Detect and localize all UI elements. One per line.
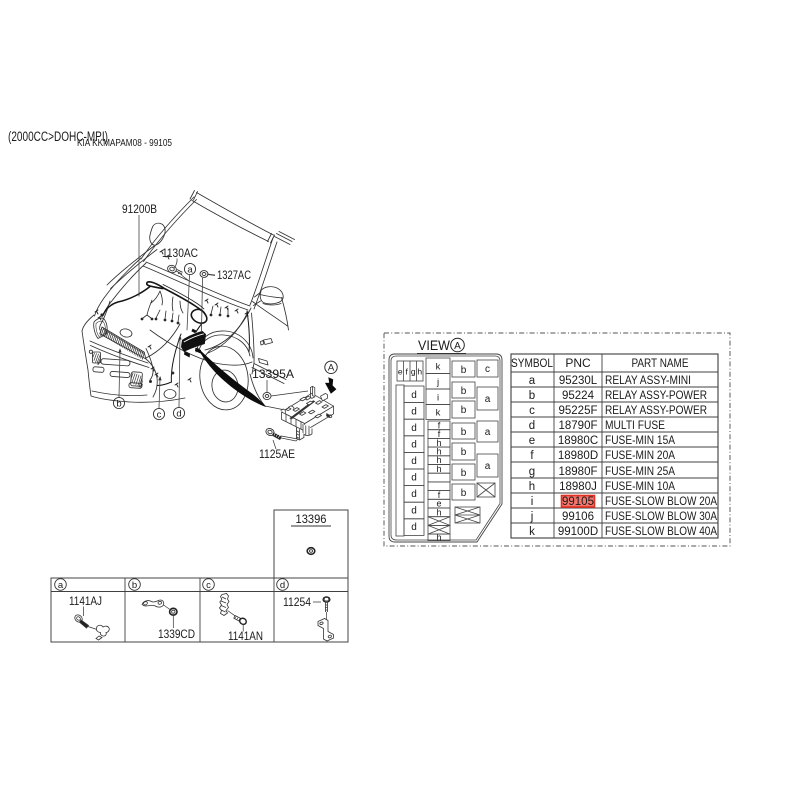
svg-text:1339CD: 1339CD	[158, 629, 195, 641]
svg-text:KIA KKMAPAM08 - 99105: KIA KKMAPAM08 - 99105	[77, 137, 172, 149]
svg-text:1130AC: 1130AC	[162, 248, 198, 260]
svg-text:a: a	[187, 265, 193, 276]
svg-text:d: d	[411, 423, 417, 434]
svg-text:d: d	[529, 420, 535, 432]
svg-text:j: j	[530, 511, 534, 523]
svg-text:1125AE: 1125AE	[259, 449, 295, 461]
svg-text:c: c	[206, 580, 211, 591]
svg-text:j: j	[436, 377, 439, 388]
svg-text:PART NAME: PART NAME	[632, 356, 689, 370]
svg-text:RELAY ASSY-MINI: RELAY ASSY-MINI	[605, 375, 691, 387]
svg-text:d: d	[280, 580, 285, 591]
svg-text:b: b	[461, 405, 467, 416]
svg-text:RELAY ASSY-POWER: RELAY ASSY-POWER	[605, 390, 707, 402]
svg-text:d: d	[411, 390, 417, 401]
svg-text:d: d	[411, 506, 417, 517]
svg-text:FUSE-MIN 15A: FUSE-MIN 15A	[605, 435, 675, 447]
svg-text:a: a	[485, 427, 491, 438]
svg-text:d: d	[176, 409, 181, 420]
svg-text:d: d	[411, 407, 417, 418]
svg-text:b: b	[461, 468, 467, 479]
svg-text:A: A	[328, 363, 335, 374]
svg-text:FUSE-SLOW BLOW 20A: FUSE-SLOW BLOW 20A	[605, 496, 717, 508]
svg-text:b: b	[461, 365, 467, 376]
svg-text:c: c	[485, 364, 490, 375]
svg-text:k: k	[436, 408, 441, 419]
svg-text:FUSE-MIN 25A: FUSE-MIN 25A	[605, 466, 675, 478]
svg-text:18980D: 18980D	[558, 450, 598, 462]
svg-text:i: i	[437, 393, 439, 404]
svg-text:FUSE-MIN 10A: FUSE-MIN 10A	[605, 481, 675, 493]
svg-text:VIEW: VIEW	[418, 338, 450, 353]
svg-text:13395A: 13395A	[252, 369, 294, 381]
svg-text:RELAY ASSY-POWER: RELAY ASSY-POWER	[605, 405, 707, 417]
svg-text:h: h	[436, 464, 441, 474]
svg-text:1141AJ: 1141AJ	[69, 596, 102, 608]
svg-text:1327AC: 1327AC	[217, 270, 251, 282]
svg-text:FUSE-SLOW BLOW 30A: FUSE-SLOW BLOW 30A	[605, 511, 717, 523]
svg-text:b: b	[116, 399, 121, 410]
svg-text:e: e	[398, 367, 403, 377]
svg-text:d: d	[411, 473, 417, 484]
svg-text:11254: 11254	[283, 597, 312, 609]
svg-text:i: i	[531, 496, 534, 508]
svg-text:b: b	[461, 386, 467, 397]
svg-text:b: b	[132, 580, 137, 591]
svg-text:d: d	[411, 522, 417, 533]
svg-text:b: b	[461, 427, 467, 438]
svg-text:18790F: 18790F	[558, 420, 597, 432]
svg-text:b: b	[461, 488, 467, 499]
svg-text:k: k	[529, 526, 535, 538]
svg-text:99100D: 99100D	[558, 526, 598, 538]
svg-text:MULTI FUSE: MULTI FUSE	[605, 420, 665, 432]
svg-text:d: d	[411, 456, 417, 467]
svg-text:c: c	[157, 410, 162, 421]
svg-text:18980F: 18980F	[558, 466, 597, 478]
svg-text:b: b	[529, 390, 535, 402]
svg-text:91200B: 91200B	[122, 204, 157, 216]
svg-text:e: e	[529, 435, 535, 447]
svg-text:h: h	[436, 532, 441, 542]
svg-text:a: a	[485, 461, 491, 472]
svg-text:99105: 99105	[562, 496, 594, 508]
svg-text:95225F: 95225F	[558, 405, 597, 417]
svg-text:g: g	[411, 367, 416, 377]
svg-text:99106: 99106	[562, 511, 594, 523]
svg-text:h: h	[417, 367, 422, 377]
svg-text:FUSE-SLOW BLOW 40A: FUSE-SLOW BLOW 40A	[605, 526, 717, 538]
svg-text:b: b	[461, 447, 467, 458]
svg-text:FUSE-MIN 20A: FUSE-MIN 20A	[605, 450, 675, 462]
svg-text:c: c	[529, 405, 535, 417]
svg-text:a: a	[529, 375, 536, 387]
svg-text:g: g	[529, 466, 535, 478]
svg-text:95230L: 95230L	[559, 375, 598, 387]
svg-text:95224: 95224	[562, 390, 595, 402]
svg-text:A: A	[454, 341, 461, 352]
svg-text:1141AN: 1141AN	[228, 631, 263, 643]
svg-text:SYMBOL: SYMBOL	[511, 356, 553, 370]
svg-text:a: a	[485, 394, 491, 405]
svg-text:18980C: 18980C	[558, 435, 598, 447]
svg-text:13396: 13396	[296, 514, 327, 526]
svg-text:18980J: 18980J	[559, 481, 597, 493]
svg-text:h: h	[529, 481, 535, 493]
svg-text:PNC: PNC	[565, 356, 591, 370]
svg-text:h: h	[436, 507, 441, 517]
svg-text:d: d	[411, 440, 417, 451]
svg-text:a: a	[58, 580, 64, 591]
svg-text:k: k	[436, 362, 441, 373]
svg-text:d: d	[411, 489, 417, 500]
